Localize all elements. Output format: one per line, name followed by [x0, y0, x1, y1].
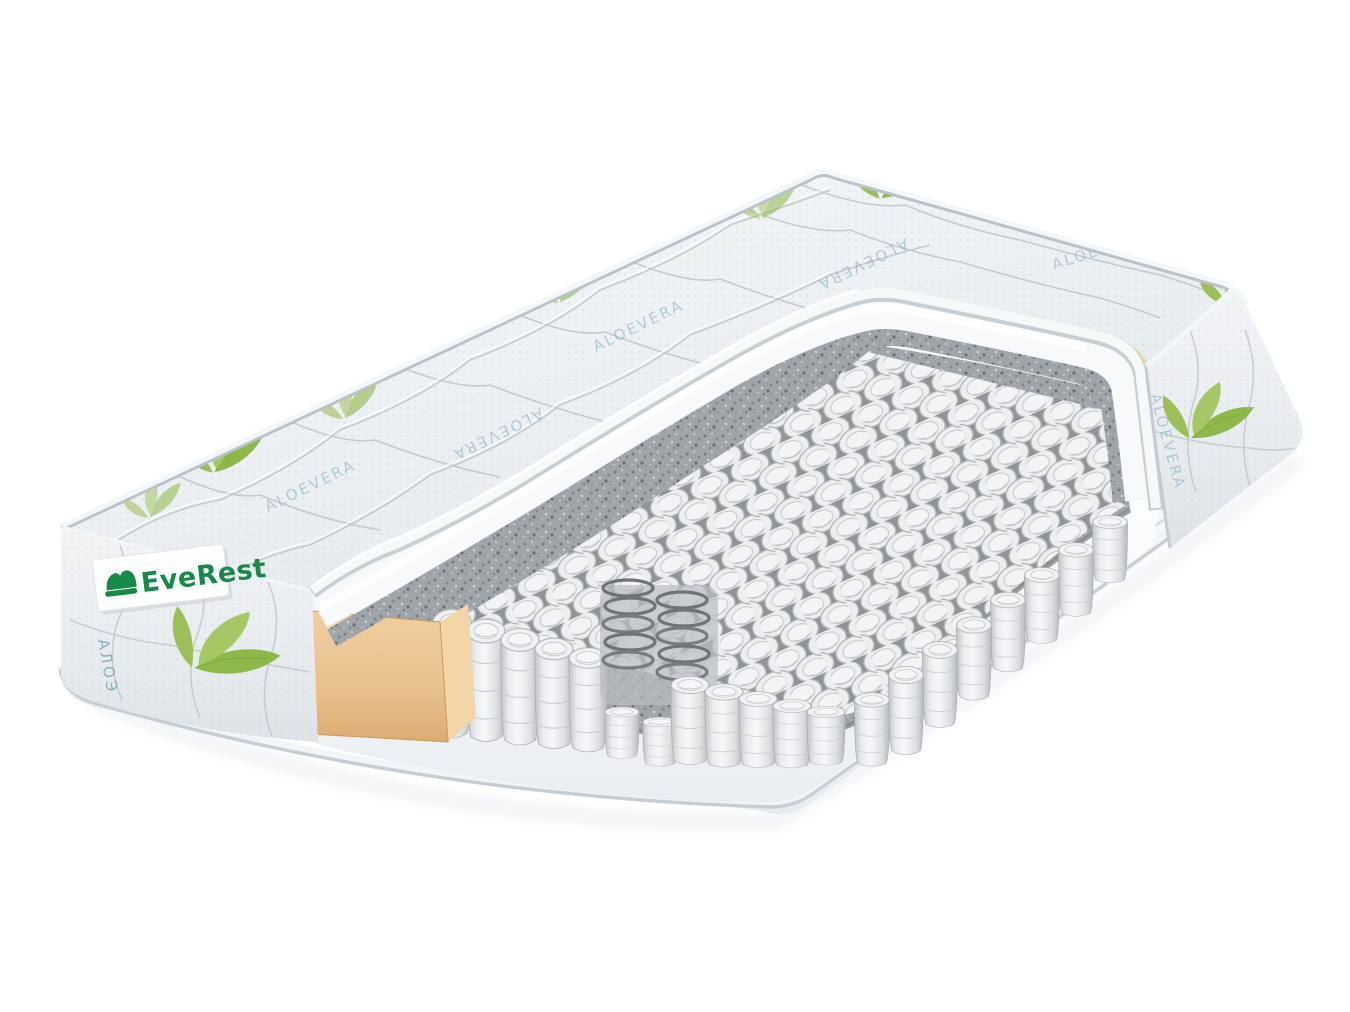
product-image-canvas: ALOEVERA ALOEVERA ALOEVERA ALOEVERA ALOE… [0, 0, 1350, 1012]
mattress-cutaway-illustration: ALOEVERA ALOEVERA ALOEVERA ALOEVERA ALOE… [0, 0, 1350, 1012]
